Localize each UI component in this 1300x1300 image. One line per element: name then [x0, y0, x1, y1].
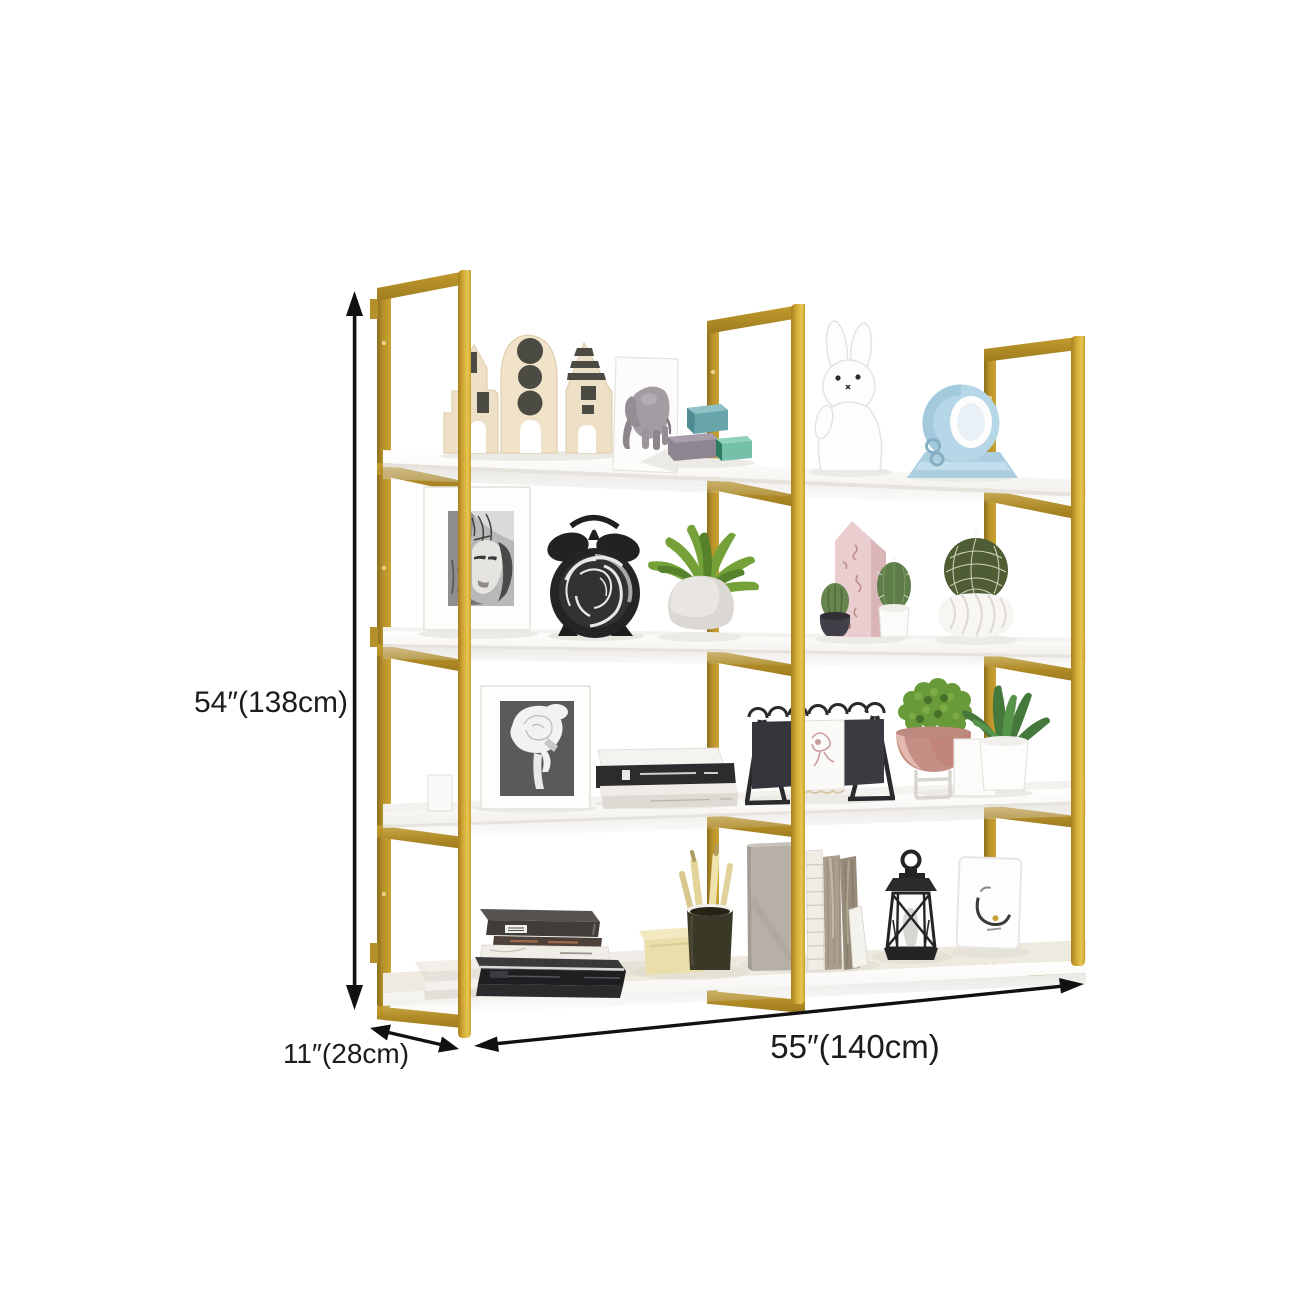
svg-text:11″(28cm): 11″(28cm) — [283, 1038, 409, 1069]
svg-text:55″(140cm): 55″(140cm) — [770, 1028, 939, 1065]
svg-text:54″(138cm): 54″(138cm) — [194, 686, 348, 719]
